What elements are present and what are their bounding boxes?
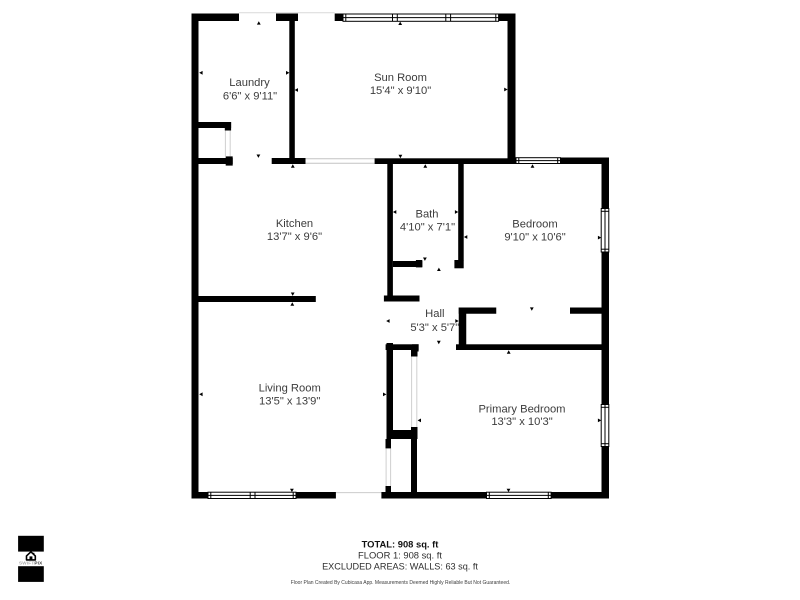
svg-text:FLOOR 1: 908 sq. ft: FLOOR 1: 908 sq. ft <box>358 549 442 560</box>
svg-text:9'10" x 10'6": 9'10" x 10'6" <box>504 231 565 243</box>
svg-text:Hall: Hall <box>425 308 444 320</box>
svg-text:13'5" x 13'9": 13'5" x 13'9" <box>259 396 320 408</box>
svg-text:6'6" x 9'11": 6'6" x 9'11" <box>223 90 277 102</box>
svg-text:13'7" x 9'6": 13'7" x 9'6" <box>267 231 322 243</box>
svg-text:13'3" x 10'3": 13'3" x 10'3" <box>491 416 552 428</box>
svg-text:Bedroom: Bedroom <box>512 218 557 230</box>
svg-text:TOTAL: 908 sq. ft: TOTAL: 908 sq. ft <box>362 538 439 549</box>
svg-text:5'3" x 5'7": 5'3" x 5'7" <box>410 322 459 334</box>
svg-text:Sun Room: Sun Room <box>374 72 427 84</box>
svg-text:Laundry: Laundry <box>229 77 270 89</box>
svg-text:EXCLUDED AREAS: WALLS: 63 sq.: EXCLUDED AREAS: WALLS: 63 sq. ft <box>322 562 478 572</box>
svg-text:Bath: Bath <box>415 209 438 221</box>
svg-text:Floor Plan Created By Cubicasa: Floor Plan Created By Cubicasa App. Meas… <box>291 580 511 586</box>
svg-text:4'10" x 7'1": 4'10" x 7'1" <box>400 221 455 233</box>
svg-text:SWIFTPIX: SWIFTPIX <box>19 561 43 566</box>
svg-text:Kitchen: Kitchen <box>276 218 313 230</box>
svg-text:Primary Bedroom: Primary Bedroom <box>478 403 565 415</box>
svg-text:Living Room: Living Room <box>259 382 321 394</box>
svg-text:15'4" x 9'10": 15'4" x 9'10" <box>370 85 431 97</box>
